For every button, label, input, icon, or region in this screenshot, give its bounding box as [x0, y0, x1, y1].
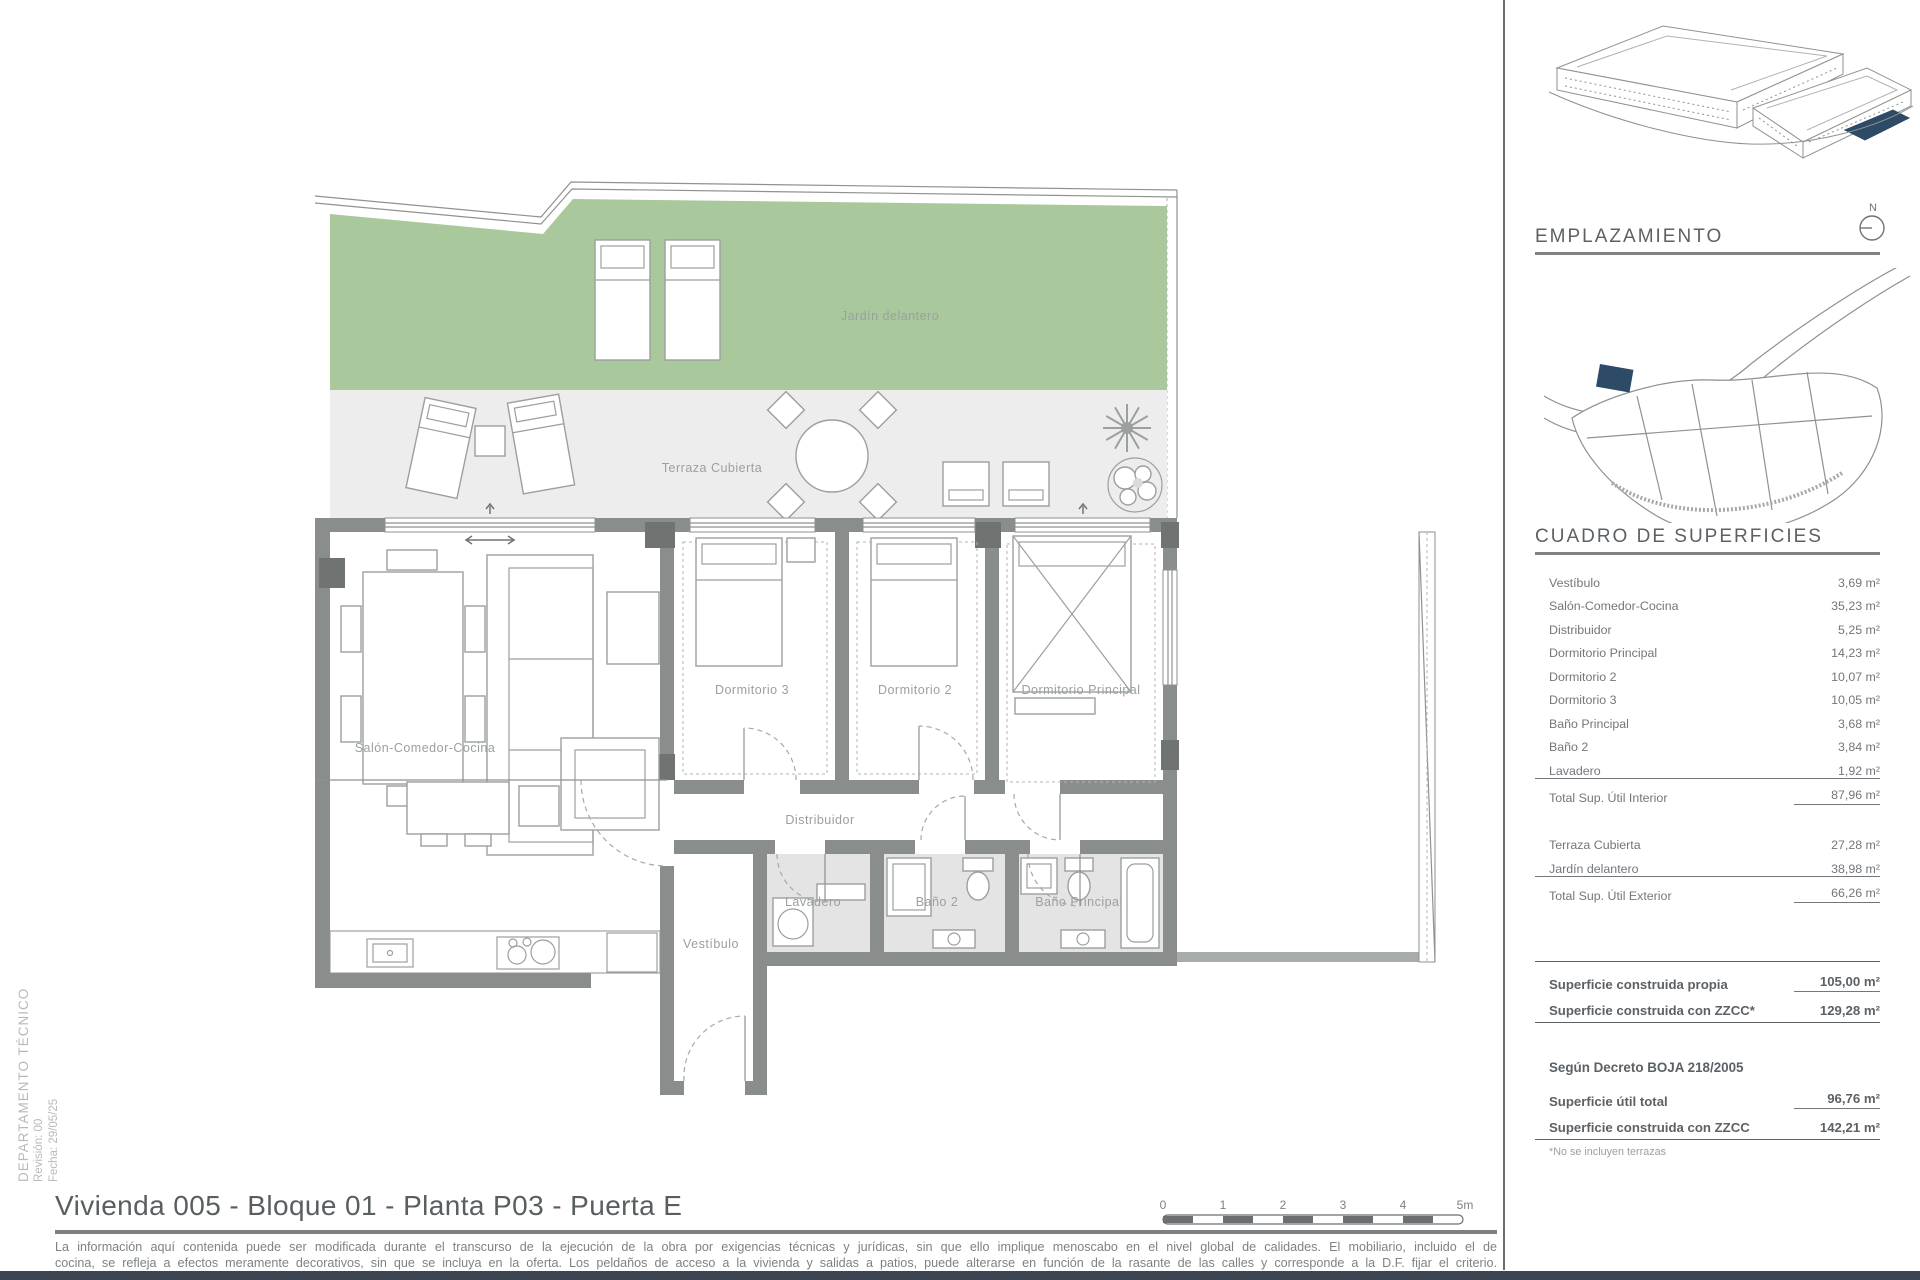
table-row: Terraza Cubierta 27,28 m²: [1535, 829, 1880, 853]
plan-sheet: { "colors": { "accent_blue": "#2d4a66", …: [0, 0, 1920, 1280]
department-label: DEPARTAMENTO TÉCNICO: [16, 988, 32, 1182]
label-dorm3: Dormitorio 3: [715, 683, 789, 697]
terrace-side-table: [475, 426, 505, 456]
disclaimer: La información aquí contenida puede ser …: [55, 1240, 1497, 1271]
table-row: Lavadero 1,92 m²: [1535, 754, 1880, 778]
label-terraza: Terraza Cubierta: [662, 461, 762, 475]
bed-dormitorio-2: [857, 538, 977, 774]
revision-label: Revisión: 00: [32, 988, 47, 1182]
decree-row: Superficie construida con ZZCC 142,21 m²: [1535, 1109, 1880, 1140]
table-row: Baño Principal 3,68 m²: [1535, 707, 1880, 731]
svg-text:4: 4: [1400, 1198, 1407, 1212]
site-map: [1542, 268, 1912, 523]
label-salon: Salón-Comedor-Cocina: [355, 741, 496, 755]
table-row: Jardín delantero 38,98 m²: [1535, 852, 1880, 876]
coffee-table: [519, 786, 559, 826]
footer-rule: [55, 1230, 1497, 1234]
built-area-row: Superficie construida propia 105,00 m²: [1535, 961, 1880, 992]
label-dorm2: Dormitorio 2: [878, 683, 952, 697]
footnote: *No se incluyen terrazas: [1535, 1140, 1880, 1158]
north-compass-icon: N: [1852, 198, 1892, 244]
side-table: [607, 592, 659, 664]
bed-dormitorio-3: [683, 538, 827, 774]
table-row: Dormitorio Principal 14,23 m²: [1535, 637, 1880, 661]
bed-dormitorio-principal: [1007, 536, 1155, 782]
side-caption: DEPARTAMENTO TÉCNICO Revisión: 00 Fecha:…: [16, 988, 62, 1182]
table-row: Baño 2 3,84 m²: [1535, 731, 1880, 755]
emplazamiento-title: EMPLAZAMIENTO: [1535, 226, 1880, 248]
label-banop: Baño Principal: [1035, 895, 1123, 909]
table-row: Salón-Comedor-Cocina 35,23 m²: [1535, 590, 1880, 614]
decree-heading: Según Decreto BOJA 218/2005: [1535, 1053, 1880, 1083]
svg-text:2: 2: [1280, 1198, 1287, 1212]
floor-plan: Jardín delantero Terraza Cubierta: [315, 140, 1450, 1105]
highlighted-unit-map: [1596, 364, 1633, 393]
label-jardin: Jardín delantero: [841, 309, 939, 323]
svg-text:N: N: [1869, 202, 1877, 214]
sidebar-divider: [1503, 0, 1505, 1270]
date-label: Fecha: 29/05/25: [47, 988, 62, 1182]
window: [385, 518, 595, 532]
building-3d-sketch: [1545, 10, 1915, 170]
covered-terrace: Terraza Cubierta: [330, 390, 1167, 520]
kitchen-counter: [330, 931, 660, 973]
surfaces-rule: [1535, 552, 1880, 555]
window: [863, 518, 975, 532]
page-title: Vivienda 005 - Bloque 01 - Planta P03 - …: [55, 1190, 682, 1222]
decree-row: Superficie útil total 96,76 m²: [1535, 1083, 1880, 1109]
surfaces-title: CUADRO DE SUPERFICIES: [1535, 526, 1880, 548]
emplazamiento-rule: [1535, 252, 1880, 255]
window: [1163, 570, 1177, 685]
bottom-accent-bar: [0, 1271, 1920, 1280]
table-row: Dormitorio 2 10,07 m²: [1535, 660, 1880, 684]
table-row: Distribuidor 5,25 m²: [1535, 613, 1880, 637]
armchair: [561, 738, 659, 830]
terrace-chair: [943, 462, 989, 506]
label-vestibulo: Vestíbulo: [683, 937, 739, 951]
built-area-row: Superficie construida con ZZCC* 129,28 m…: [1535, 992, 1880, 1023]
label-distribuidor: Distribuidor: [785, 813, 854, 827]
svg-text:5m: 5m: [1457, 1198, 1474, 1212]
exterior-total-row: Total Sup. Útil Exterior 66,26 m²: [1535, 876, 1880, 903]
window: [1015, 518, 1150, 532]
svg-text:0: 0: [1160, 1198, 1167, 1212]
interior-total-row: Total Sup. Útil Interior 87,96 m²: [1535, 778, 1880, 805]
label-bano2: Baño 2: [916, 895, 959, 909]
scale-bar: 0 1 2 3 4 5m: [1148, 1196, 1488, 1232]
label-dormp: Dormitorio Principal: [1021, 683, 1140, 697]
garden-lounger: [665, 240, 720, 360]
window: [690, 518, 815, 532]
surfaces-table: Vestíbulo 3,69 m² Salón-Comedor-Cocina 3…: [1535, 566, 1880, 1158]
terrace-chair: [1003, 462, 1049, 506]
svg-text:1: 1: [1220, 1198, 1227, 1212]
table-row: Dormitorio 3 10,05 m²: [1535, 684, 1880, 708]
right-boundary: [1177, 532, 1435, 962]
garden-lounger: [595, 240, 650, 360]
dining-table: [341, 550, 485, 806]
label-lavadero: Lavadero: [785, 895, 841, 909]
table-row: Vestíbulo 3,69 m²: [1535, 566, 1880, 590]
svg-text:3: 3: [1340, 1198, 1347, 1212]
